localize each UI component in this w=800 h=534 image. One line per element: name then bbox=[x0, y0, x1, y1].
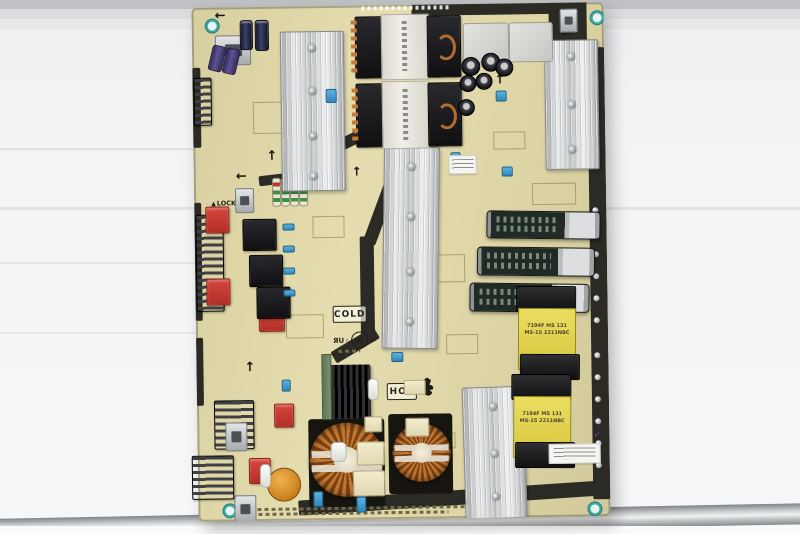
shelf-front bbox=[0, 526, 800, 534]
electrolytic-capacitor-small bbox=[475, 73, 492, 90]
board-slot bbox=[196, 338, 204, 406]
transformer-marking-line2: MS-15 2211NBC bbox=[514, 418, 570, 425]
silkscreen-outline bbox=[446, 334, 478, 354]
heatsink-left bbox=[280, 31, 346, 192]
metal-clip bbox=[234, 495, 256, 522]
pcb-board: ← ↑ ← ↑ ↑ ← ↑ ↑ ▲ LOCK bbox=[191, 2, 610, 522]
capacitor-blue bbox=[356, 497, 366, 513]
transformer-marking-line2: MS-15 2211NBC bbox=[519, 330, 575, 337]
silkscreen-outline bbox=[493, 131, 525, 149]
shelf-seam bbox=[0, 148, 196, 150]
electrolytic-capacitor-navy bbox=[255, 20, 269, 51]
heatsink-center bbox=[382, 147, 440, 350]
transformer-tape bbox=[381, 14, 430, 81]
transformer-pins bbox=[351, 21, 358, 73]
film-capacitor-red bbox=[205, 206, 229, 233]
daughter-board-edge bbox=[321, 354, 332, 420]
metal-clip bbox=[225, 422, 247, 451]
transformer-tape-text bbox=[402, 21, 408, 71]
transformer-bobbin bbox=[427, 15, 462, 77]
silkscreen-outline bbox=[286, 314, 324, 339]
transformer-tape-text bbox=[403, 89, 409, 141]
electrolytic-capacitor-small bbox=[459, 75, 476, 92]
standoff-white bbox=[331, 442, 347, 462]
film-capacitor-cream bbox=[404, 380, 426, 395]
transformer-main-1 bbox=[355, 13, 460, 78]
capacitor-blue bbox=[496, 91, 507, 102]
film-capacitor-gray bbox=[509, 22, 554, 63]
silkscreen-outline bbox=[532, 183, 576, 206]
connector-ac-inlet bbox=[192, 455, 235, 500]
arrow-up-icon: ↑ bbox=[244, 361, 255, 374]
electrolytic-capacitor-navy bbox=[240, 20, 253, 50]
transformer-pins bbox=[352, 89, 359, 141]
electrolytic-capacitor-small bbox=[495, 58, 513, 76]
id-label-box bbox=[449, 155, 477, 174]
ul-c: c bbox=[346, 337, 349, 343]
fusible-resistor bbox=[272, 178, 281, 207]
metal-clip bbox=[559, 9, 577, 33]
thermistor-orange-disc bbox=[267, 467, 301, 501]
capacitor-blue bbox=[282, 380, 291, 392]
transformer-main-2 bbox=[355, 79, 460, 148]
silkscreen-caution-text bbox=[258, 510, 448, 516]
shelf-seam bbox=[0, 262, 196, 264]
film-capacitor-cream bbox=[405, 418, 429, 437]
ic-block bbox=[249, 255, 283, 287]
capacitor-blue bbox=[391, 352, 403, 362]
film-capacitor-red bbox=[274, 404, 294, 428]
capacitor-blue bbox=[282, 223, 294, 230]
capacitor-blue bbox=[502, 166, 513, 176]
film-capacitor-cream bbox=[353, 470, 385, 496]
label-cold: COLD bbox=[333, 305, 367, 322]
standoff-white bbox=[368, 378, 379, 400]
sticker-label bbox=[549, 443, 601, 464]
ic-block bbox=[242, 219, 276, 251]
arrow-left-icon: ← bbox=[214, 9, 225, 22]
electrolytic-capacitor-green-horizontal bbox=[477, 246, 595, 276]
ul-us: us bbox=[370, 337, 376, 343]
capacitor-blue bbox=[313, 491, 323, 507]
metal-clip bbox=[235, 188, 254, 213]
shelf-seam bbox=[0, 332, 196, 334]
transformer-bobbin bbox=[356, 83, 385, 147]
arrow-left-icon: ← bbox=[236, 170, 247, 183]
transformer-bobbin bbox=[427, 82, 462, 146]
ul-logo: UL bbox=[351, 331, 368, 348]
output-transformer-1: 7194F MS 131 MS-15 2211NBC bbox=[516, 286, 578, 380]
standoff-white bbox=[260, 464, 271, 488]
transformer-winding bbox=[437, 103, 457, 129]
capacitor-blue bbox=[283, 267, 295, 274]
electrolytic-capacitor-green-horizontal bbox=[486, 210, 600, 239]
screw-hole bbox=[588, 502, 601, 515]
arrow-up-icon: ↑ bbox=[266, 150, 277, 163]
toroid-center bbox=[412, 443, 432, 463]
film-capacitor-cream bbox=[364, 416, 382, 432]
capacitor-blue bbox=[326, 89, 337, 103]
transformer-winding bbox=[436, 34, 456, 60]
silkscreen-outline bbox=[312, 216, 344, 238]
photo-power-supply-board: ← ↑ ← ↑ ↑ ← ↑ ↑ ▲ LOCK bbox=[0, 0, 800, 534]
electrolytic-capacitor-small bbox=[461, 57, 480, 76]
ul-certification-mark: ЯU c UL us bbox=[333, 331, 376, 349]
capacitor-blue bbox=[283, 245, 295, 252]
capacitor-blue bbox=[283, 289, 295, 296]
film-capacitor-red bbox=[206, 278, 230, 305]
screw-hole bbox=[591, 11, 604, 24]
transformer-bobbin bbox=[355, 16, 384, 78]
ur-mark: ЯU bbox=[333, 336, 344, 344]
arrow-up-icon: ↑ bbox=[352, 166, 362, 178]
heatsink-finned-black bbox=[328, 364, 371, 419]
film-capacitor-cream bbox=[357, 441, 385, 465]
purple-check-mark: ✓ bbox=[593, 430, 601, 440]
electrolytic-capacitor-small bbox=[458, 99, 475, 116]
connector-left-top bbox=[193, 78, 212, 126]
transformer-tape bbox=[381, 81, 430, 150]
ul-file-number-text bbox=[338, 350, 360, 353]
pcb-substrate: ← ↑ ← ↑ ↑ ← ↑ ↑ ▲ LOCK bbox=[191, 2, 610, 522]
